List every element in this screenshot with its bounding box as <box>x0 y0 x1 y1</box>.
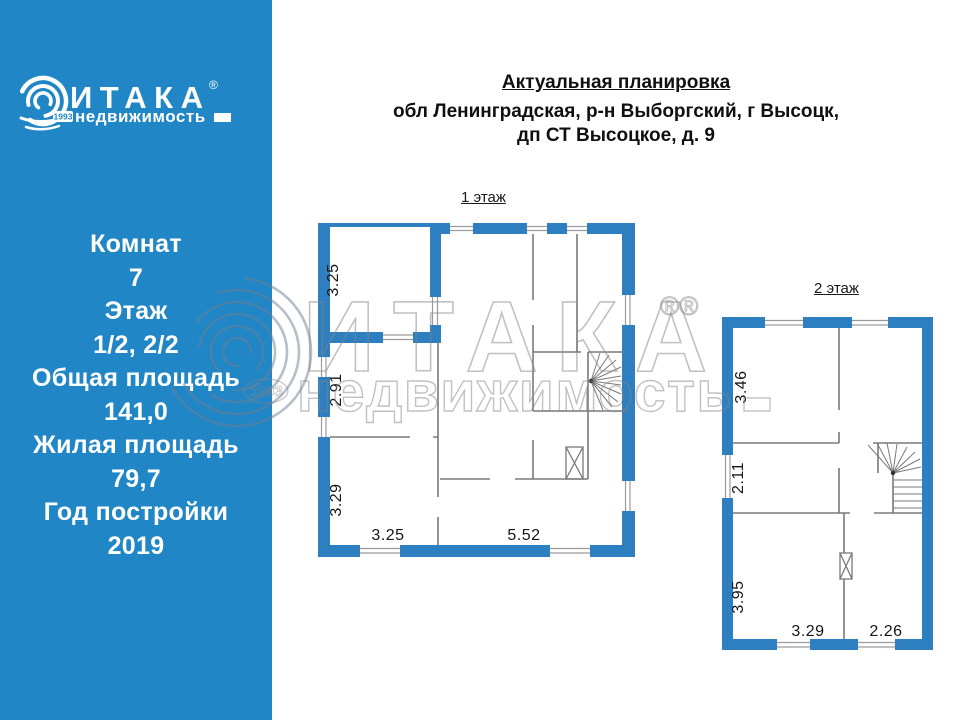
floor2-walls <box>722 317 933 650</box>
logo-subtitle: недвижимость <box>75 107 206 126</box>
stat-label: Этаж <box>0 295 272 329</box>
stat-label: Общая площадь <box>0 362 272 396</box>
dimension-label: 3.29 <box>328 483 345 516</box>
stat-label: Год постройки <box>0 496 272 530</box>
stat-value: 7 <box>0 262 272 296</box>
floor2-interior-walls <box>733 328 922 639</box>
floor1-closet <box>566 447 583 479</box>
stat-label: Жилая площадь <box>0 429 272 463</box>
stat-value: 141,0 <box>0 396 272 430</box>
page-title: Актуальная планировка <box>272 72 960 94</box>
dimension-label: 2.91 <box>328 373 345 406</box>
address-line-1: обл Ленинградская, р-н Выборгский, г Выс… <box>272 100 960 124</box>
logo-underscore-shape <box>214 113 231 122</box>
flyer-page: ИТАКА ® 1993 недвижимость Комнат 7 Этаж … <box>0 0 960 720</box>
logo-registered-icon: ® <box>209 78 218 92</box>
floor2-plan: 3.46 2.11 3.95 3.29 2.26 <box>716 310 938 655</box>
header: Актуальная планировка обл Ленинградская,… <box>272 72 960 148</box>
wave-swirl-icon <box>18 70 74 131</box>
stat-value: 79,7 <box>0 463 272 497</box>
sidebar: ИТАКА ® 1993 недвижимость Комнат 7 Этаж … <box>0 0 272 720</box>
property-stats: Комнат 7 Этаж 1/2, 2/2 Общая площадь 141… <box>0 228 272 563</box>
floor2-stairs <box>868 443 922 508</box>
floor1-label: 1 этаж <box>461 189 506 206</box>
stat-value: 1/2, 2/2 <box>0 329 272 363</box>
itaka-logo: ИТАКА ® 1993 недвижимость <box>18 60 254 140</box>
dimension-label: 5.52 <box>507 527 540 544</box>
dimension-label: 3.46 <box>733 370 750 403</box>
watermark-registered-icons: ®® <box>660 291 698 321</box>
floor1-plan: 3.25 2.91 3.29 3.25 5.52 <box>313 218 639 561</box>
address-line-2: дп СТ Высоцкое, д. 9 <box>272 124 960 148</box>
floor2-windows <box>726 321 896 648</box>
dimension-label: 3.25 <box>325 263 342 296</box>
floor2-label: 2 этаж <box>814 280 859 297</box>
dimension-label: 2.26 <box>869 623 902 640</box>
dimension-label: 2.11 <box>730 462 747 494</box>
floor2-dimensions: 3.46 2.11 3.95 3.29 2.26 <box>730 370 903 640</box>
logo-year-text: 1993 <box>54 112 73 122</box>
floor1-interior-walls <box>330 234 628 545</box>
dimension-label: 3.25 <box>371 527 404 544</box>
stat-label: Комнат <box>0 228 272 262</box>
dimension-label: 3.95 <box>730 580 747 613</box>
floor1-stairs <box>589 353 621 410</box>
floor1-windows <box>322 227 631 554</box>
stat-value: 2019 <box>0 530 272 564</box>
floor2-closet <box>840 553 852 579</box>
dimension-label: 3.29 <box>791 623 824 640</box>
